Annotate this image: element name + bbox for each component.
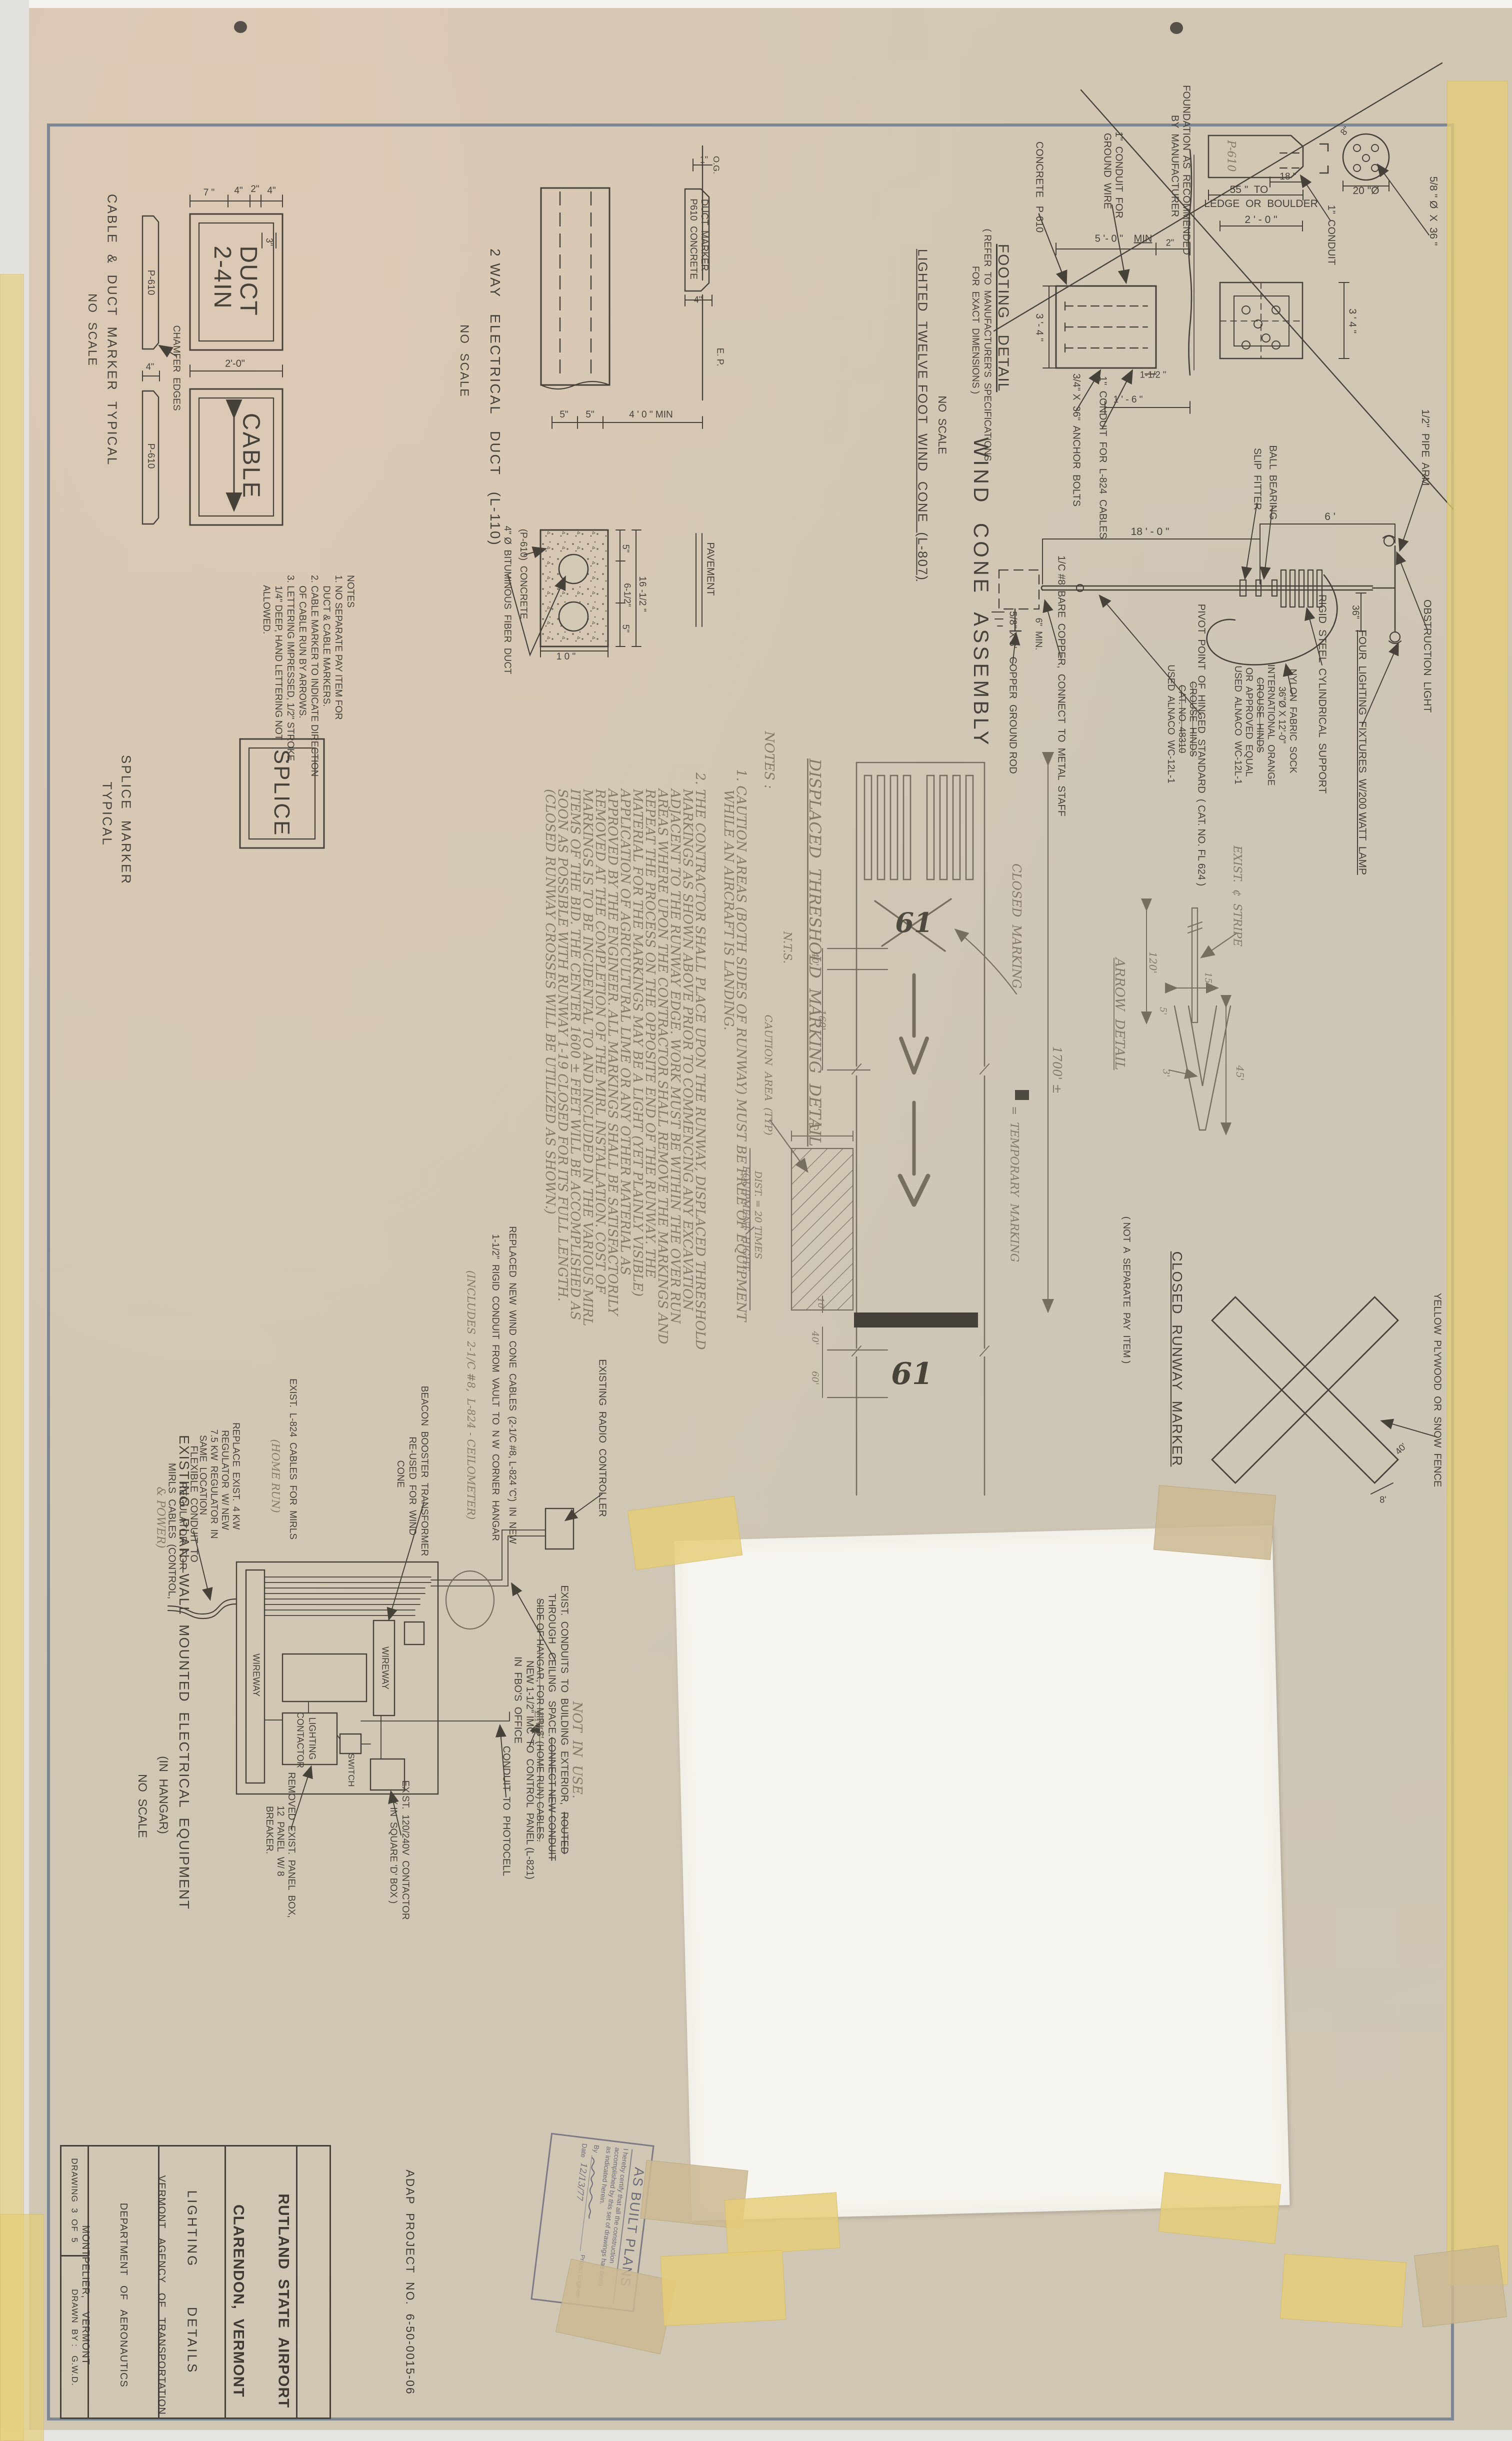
dim-2in-footing: 2" [1166,238,1174,248]
label-pavement: PAVEMENT [704,542,716,595]
title-splice-marker: SPLICE MARKER [118,755,134,885]
dim-18in: 18 " [1279,171,1296,182]
dim-5ft: 5 '- 0 " [1095,233,1123,245]
dim-6ft: 6 ' [1324,511,1335,523]
dim-4ft-min: 4 ' 0 " MIN [629,409,672,420]
note-2: 2. THE CONTRACTOR SHALL PLACE UPON THE R… [543,772,706,1350]
label-pivot-point: PIVOT POINT OF HINGED STANDARD ( CAT. NO… [1195,604,1207,886]
title-block: DRAWING 3 OF 5 DRAWN BY : G.W.D. VERMONT… [60,2145,331,2419]
subtitle-in-hangar: (IN HANGAR) [156,1756,170,1834]
label-nylon3: INTERNATIONAL ORANGE [1265,664,1276,786]
label-dist1: DIST. = 20 TIMES [752,1171,763,1259]
label-exist-conduits2b: CONNECT NEW CONDUIT [546,1737,557,1860]
label-flexible3: MIRLS CABLES (CONTROL, [166,1463,177,1599]
subtitle-refer: ( REFER TO MANUFACTURER'S SPECIFICATIONS [981,229,992,461]
dim-4in-chamfer: 4" [146,362,154,372]
title-splice-marker2: TYPICAL [99,781,115,846]
runway-numeral: 61 [891,1356,933,1391]
label-rigid-conduit-vault: 1-1/2" RIGID CONDUIT FROM VAULT TO N W C… [489,1234,500,1541]
title-arrow-detail: ARROW DETAIL [1112,958,1127,1070]
note-not-in-use: NOT IN USE. [569,1701,584,1798]
tape-left-bottom [0,2214,44,2441]
p610-bar-label: P-610 [145,270,156,295]
tape-bottom-4 [1414,2245,1507,2327]
label-contactor: CONTACTOR [295,1712,305,1768]
label-bare-copper: 1/C #8 BARE COPPER, CONNECT TO METAL STA… [1055,555,1067,816]
label-crouse3: USED ALNACO WC-12L-1 [1165,664,1176,783]
p610-bar-label: P-610 [145,443,156,469]
label-replace2: REGULATOR W/ NEW [219,1430,230,1530]
dim-2in: 2" [250,184,259,195]
legend-swatch [1015,1090,1029,1100]
dim-10in: 1 0 " [556,651,575,662]
label-windcone-cables: REPLACED NEW WIND CONE CABLES (2-1/C #8,… [506,1226,517,1543]
label-four-fixtures: FOUR LIGHTING FIXTURES W/200 WATT LAMP [1356,630,1368,875]
title-wind-cone-assembly: WIND CONE ASSEMBLY [969,437,993,748]
dim-45ft: 45' [1234,1065,1246,1081]
tape-bottom-3 [1280,2254,1406,2327]
dim-8ft-marker: 8' [1379,1495,1386,1505]
dim-55in: 55 " TO [1230,184,1268,196]
label-replace4: SAME LOCATION [197,1435,208,1515]
dim-120ft: 120' [1147,951,1159,973]
title-footing-detail: FOOTING DETAIL [994,244,1011,392]
label-rigid-support: RIGID STEEL CYLINDRICAL SUPPORT [1316,594,1328,793]
label-conduit-ground1: 1" CONDUIT FOR [1113,131,1124,218]
label-closed-marking: CLOSED MARKING [1009,863,1023,988]
label-ep: E. P. [715,348,725,366]
title-closed-runway-marker: CLOSED RUNWAY MARKER [1169,1251,1185,1467]
label-replace1: REPLACE EXIST. 4 KW [230,1422,241,1529]
airport-cell: RUTLAND STATE AIRPORT CLARENDON, VERMONT [226,2146,297,2417]
scanned-drawing-sheet: DRAWING 3 OF 5 DRAWN BY : G.W.D. VERMONT… [0,0,1512,2441]
legend-not-separate: ( NOT A SEPARATE PAY ITEM ) [1120,1216,1131,1364]
dim-2ft: 2'-0" [225,358,245,370]
label-flexible2: REGULATOR FOR [177,1482,188,1570]
tape-patch-bottom-center [724,2192,840,2255]
label-crouse2: CAT. NO. 48310 [1176,685,1187,753]
subtitle-no-scale-duct: NO SCALE [457,324,471,397]
duct-marker-text: DUCT 2-4IN [209,245,261,316]
dim-4in-marker: 4" [694,295,702,305]
label-conduit-photocell: CONDUIT TO PHOTOCELL [500,1746,512,1876]
airport-name: RUTLAND STATE AIRPORT [275,2193,292,2408]
airport-city: CLARENDON, VERMONT [230,2204,247,2397]
dim-6in-min: 6" MIN. [1033,618,1044,650]
label-nylon5: OR APPROVED EQUAL [1243,667,1254,777]
legend-temporary-marking: = TEMPORARY MARKING [1008,1106,1020,1262]
project-cell: ADAP PROJECT NO. 6-50-0015-06 [297,2146,522,2417]
dim-10ft: 10' [815,1297,825,1310]
tape-patch-bottom-right [1158,2172,1281,2244]
label-1in-conduit: 1" CONDUIT [1325,205,1337,265]
label-fbo-office: IN FBO'S OFFICE [512,1656,523,1743]
note-includes: (INCLUDES 2-1/C #8, L-824 - CEILOMETER) [465,1270,477,1520]
agency-line3: MONTPELIER, VERMONT [80,2225,91,2365]
subtitle-no-scale-marker: NO SCALE [85,293,99,366]
label-new-emt: NEW 1-1/2" IMC TO CONTROL PANEL (L-821) [524,1660,535,1879]
tape-bottom-2 [660,2250,786,2326]
label-conduit-ground2: GROUND WIRE [1101,133,1113,209]
paper-patch [674,1525,1289,2221]
tape-patch-top-right [1153,1485,1276,1560]
dim-160ft: 160' [816,1009,827,1030]
dim-2ft-plan: 2 ' - 0 " [1244,214,1277,226]
dim-1half: 1-1/2 " [1140,370,1166,380]
subtitle-refer2: FOR EXACT DIMENSIONS ) [969,266,980,394]
sheet-title: LIGHTING DETAILS [184,2190,200,2374]
tape-left-strip [0,274,24,2441]
dim-40ft-b: 40' [810,1331,820,1345]
label-mirls-cables: EXIST. L-824 CABLES FOR MIRLS [287,1378,298,1539]
label-conduit-l824: 1" CONDUIT FOR L-824 CABLES [1097,376,1108,539]
dim-min: MIN [1134,233,1152,245]
label-p610-block: P-610 [1225,140,1237,171]
label-removed1: REMOVED EXIST. PANEL BOX, [285,1772,296,1917]
label-beacon3: CONE [394,1460,405,1488]
dim-3ft-arrow: 3' [1161,1069,1171,1077]
label-duct-marker: DUCT MARKER [698,199,709,271]
dim-18ft: 18 ' - 0 " [1131,526,1169,538]
notes-header: NOTES : [761,731,776,788]
dim-15ft: 15' [1203,972,1213,986]
label-foundation1: FOUNDATION AS RECOMMENDED [1180,85,1192,255]
dim-4in: 4" [267,185,275,196]
dim-5in-sec: 5" [620,624,631,632]
title-wind-cone: LIGHTED TWELVE FOOT WIND CONE (L-807) [915,249,930,581]
dim-5ft-arrow: 5' [1158,1007,1168,1015]
stamp-date-label: Date [579,2143,588,2158]
stamp-by-label: By [592,2144,600,2153]
label-exist-conduits1b: ROUTED [558,1812,570,1854]
marker-notes: NOTES 1. NO SEPARATE PAY ITEM FOR DUCT &… [260,575,356,776]
dim-6half: 6-1/2" [622,583,632,606]
label-concrete-p610: CONCRETE P-610 [1033,141,1045,232]
agency-line2: DEPARTMENT OF AERONAUTICS [118,2203,129,2387]
label-nylon1: NYLON FABRIC SOCK [1287,668,1298,773]
label-p610-concrete: P610 CONCRETE [687,198,698,279]
dim-36in: 36" [1349,605,1360,619]
dim-1700ft: 1700' ± [1050,1046,1064,1093]
dim-3ft4-plan: 3 ' 4 " [1346,308,1358,333]
dim-5in: 5" [585,409,594,420]
label-pipe-arm: 1/2" PIPE ARM [1419,409,1431,485]
label-switch: SWITCH [346,1753,356,1786]
label-flexible4: & POWER) [154,1486,167,1548]
label-replace3: 7.5 KW REGULATOR IN [208,1429,219,1539]
label-fiber-duct: 4" Ø BITUMINOUS FIBER DUCT [501,525,512,674]
cable-marker-text: CABLE [237,413,265,499]
label-ball-bearing: BALL BEARING [1267,445,1278,519]
label-ledge: LEDGE OR BOULDER [1204,198,1318,210]
temporary-marking-bar [854,1312,978,1327]
label-wireway2: WIREWAY [380,1646,390,1689]
subtitle-no-scale-plan: NO SCALE [135,1774,149,1838]
label-removed3: BREAKER. [263,1806,274,1854]
label-nylon6: USED ALNACO WC-12L-1 [1232,665,1243,784]
label-og: O.G. [711,156,721,174]
dim-20in: 20 "Ø [1353,185,1379,197]
dim-3in: 3" [264,238,274,246]
label-beacon2: RE-USED FOR WIND [406,1436,417,1535]
label-beacon1: BEACON BOOSTER TRANSFORMER [418,1386,429,1556]
label-obstruction-light: OBSTRUCTION LIGHT [1421,599,1433,712]
label-exist-stripe: EXIST. ¢ STRIPE [1231,845,1243,946]
dim-40ft: 40' [810,952,820,966]
label-lighting: LIGHTING [307,1717,317,1759]
title-2way-duct: 2 WAY ELECTRICAL DUCT (L-110) [487,248,503,546]
label-caution-area: CAUTION AREA (TYP) [762,1014,774,1135]
label-exist-contactor1: EXIST. 120/240V CONTACTOR [399,1780,410,1919]
runway-numeral-closed: 61 [895,906,932,938]
dim-5in-sec: 5" [620,544,631,552]
label-exist-contactor2: ( IN SQUARE 'D' BOX ) [387,1801,398,1904]
dim-5-8-rod: 5/8 " Ø X 36 " [1427,176,1439,246]
dim-5in: 5" [559,409,568,420]
label-foundation2: BY MANUFACTURER [1169,115,1180,217]
dim-60ft-b: 60' [810,1371,820,1385]
tape-right-strip [1447,81,1508,2285]
project-number: ADAP PROJECT NO. 6-50-0015-06 [403,2169,417,2394]
dim-3ft4: 3 '- 4 " [1033,313,1045,342]
label-exist-conduits2: THROUGH CEILING SPACE. [546,1593,557,1736]
dim-4in: 4" [234,185,242,196]
dim-7in: 7 " [203,187,215,198]
label-removed2: 12 PANEL W/ 8 [274,1805,285,1876]
label-wireway: WIREWAY [251,1653,261,1696]
label-dist2: EQUIPMENT HIGHT. [740,1166,751,1272]
dim-16half: 16 -1/2 " [636,576,647,611]
label-ground-rod: 5/8" X 8' COPPER GROUND ROD [1007,611,1018,773]
agency-cell: VERMONT AGENCY OF TRANSPORTATION DEPARTM… [89,2146,159,2417]
label-exist-conduits1: EXIST. CONDUITS TO BUILDING EXTERIOR, [558,1585,570,1804]
subtitle-nts: N.T.S. [781,931,793,964]
label-p610-conc-section: (P-610) CONCRETE [517,529,528,619]
label-chamfer-edges: CHAMFER EDGES [170,325,181,410]
label-yellow-plywood: YELLOW PLYWOOD OR SNOW FENCE [1431,1293,1443,1487]
dim-1in: 1" [700,155,708,165]
label-nylon4: CROUSE HINDS [1254,677,1265,753]
label-radio-controller: EXISTING RADIO CONTROLLER [596,1359,608,1517]
title-cable-duct-marker: CABLE & DUCT MARKER TYPICAL [104,194,120,466]
splice-marker-text: SPLICE [269,749,294,837]
dim-75ft: 75' [807,1121,822,1132]
note-home-run: (HOME RUN) [269,1439,281,1512]
dim-1ft6: 1 ' - 6 " [1113,394,1143,405]
label-anchor-bolts: 3/4" X 36" ANCHOR BOLTS [1070,373,1082,506]
subtitle-no-scale-wc: NO SCALE [935,395,948,454]
label-nylon2: 36"Ø X 12'-0" [1276,686,1287,743]
label-slip-fitter: SLIP FITTER [1251,448,1263,510]
